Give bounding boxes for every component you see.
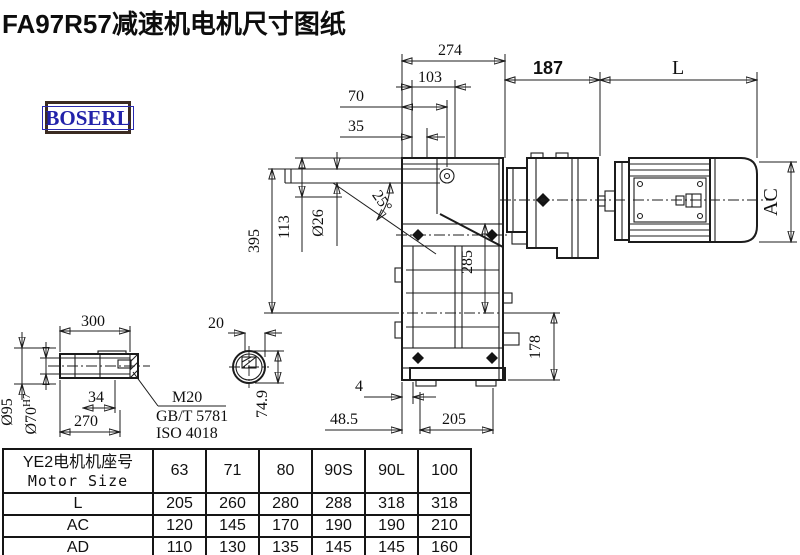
table-col-header: 63 xyxy=(153,449,206,493)
table-cell: 145 xyxy=(365,537,418,555)
row-label: AD xyxy=(3,537,153,555)
gearbox-housing xyxy=(285,158,519,386)
table-cell: 205 xyxy=(153,493,206,515)
dim-34: 34 xyxy=(88,389,104,406)
dim-285: 285 xyxy=(459,250,476,274)
motor xyxy=(500,158,772,242)
dim-187: 187 xyxy=(533,58,563,78)
label-iso-4018: ISO 4018 xyxy=(156,425,218,442)
dim-74-9: 74.9 xyxy=(254,390,271,418)
label-m20: M20 xyxy=(172,389,202,406)
table-cell: 160 xyxy=(418,537,471,555)
dim-103: 103 xyxy=(418,69,442,86)
row-label: AC xyxy=(3,515,153,537)
label-gbt-5781: GB/T 5781 xyxy=(156,408,228,425)
extension-lines xyxy=(264,54,797,434)
table-cell: 145 xyxy=(312,537,365,555)
header-en: Motor Size xyxy=(4,472,152,490)
dim-dia70h7: Ø70H7 xyxy=(21,393,40,435)
drawing-sheet: FA97R57减速机电机尺寸图纸 BOSERL xyxy=(0,0,800,555)
dim-113: 113 xyxy=(276,215,293,238)
table-cell: 145 xyxy=(206,515,259,537)
dim-395: 395 xyxy=(246,229,263,253)
shaft-end-view-detail: 20 74.9 xyxy=(208,315,284,418)
dim-48-5: 48.5 xyxy=(330,411,358,428)
table-col-header: 100 xyxy=(418,449,471,493)
table-row-AC: AC 120 145 170 190 190 210 xyxy=(3,515,471,537)
row-label: L xyxy=(3,493,153,515)
table-cell: 318 xyxy=(365,493,418,515)
dim-4: 4 xyxy=(355,378,363,395)
table-col-header: 90L xyxy=(365,449,418,493)
dim-205: 205 xyxy=(442,411,466,428)
table-cell: 120 xyxy=(153,515,206,537)
dim-L: L xyxy=(672,57,684,79)
table-cell: 190 xyxy=(312,515,365,537)
dim-274: 274 xyxy=(438,42,462,59)
table-cell: 135 xyxy=(259,537,312,555)
table-cell: 190 xyxy=(365,515,418,537)
dim-AC: AC xyxy=(760,188,782,216)
dim-dia26: Ø26 xyxy=(310,209,327,237)
dim-300: 300 xyxy=(81,313,105,330)
table-header-row: YE2电机机座号 Motor Size 63 71 80 90S 90L 100 xyxy=(3,449,471,493)
table-cell: 318 xyxy=(418,493,471,515)
table-cell: 210 xyxy=(418,515,471,537)
table-header-motor-size: YE2电机机座号 Motor Size xyxy=(3,449,153,493)
dim-35: 35 xyxy=(348,118,364,135)
dim-20: 20 xyxy=(208,315,224,332)
table-col-header: 80 xyxy=(259,449,312,493)
header-cn: YE2电机机座号 xyxy=(4,453,152,472)
table-col-header: 90S xyxy=(312,449,365,493)
table-cell: 288 xyxy=(312,493,365,515)
table-cell: 260 xyxy=(206,493,259,515)
table-row-AD: AD 110 130 135 145 145 160 xyxy=(3,537,471,555)
hollow-shaft-detail: 300 Ø95 Ø70H7 34 270 M20 GB/T 5781 ISO 4… xyxy=(0,313,228,442)
dim-25deg: 25° xyxy=(368,187,395,215)
table-col-header: 71 xyxy=(206,449,259,493)
motor-size-table: YE2电机机座号 Motor Size 63 71 80 90S 90L 100… xyxy=(2,448,472,555)
table-cell: 280 xyxy=(259,493,312,515)
dim-70: 70 xyxy=(348,88,364,105)
table-cell: 110 xyxy=(153,537,206,555)
dim-270: 270 xyxy=(74,413,98,430)
dim-178: 178 xyxy=(527,335,544,359)
table-cell: 130 xyxy=(206,537,259,555)
dim-dia95: Ø95 xyxy=(0,398,16,426)
table-row-L: L 205 260 280 288 318 318 xyxy=(3,493,471,515)
table-cell: 170 xyxy=(259,515,312,537)
gear-unit-adapter xyxy=(507,153,615,258)
